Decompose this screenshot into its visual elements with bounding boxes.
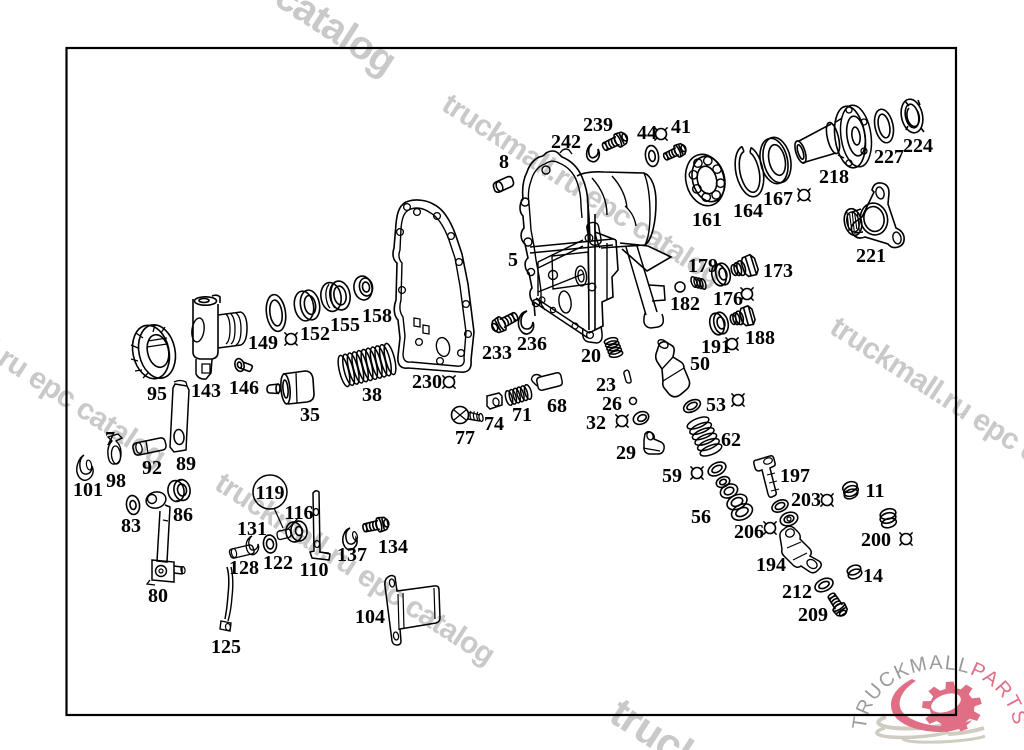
svg-text:32: 32: [586, 412, 606, 434]
svg-text:227: 227: [874, 146, 904, 168]
svg-text:41: 41: [671, 116, 691, 138]
svg-text:50: 50: [690, 353, 710, 375]
svg-text:188: 188: [745, 327, 775, 349]
svg-text:206: 206: [734, 521, 764, 543]
svg-text:14: 14: [863, 565, 883, 587]
svg-text:56: 56: [691, 506, 711, 528]
svg-text:155: 155: [330, 314, 360, 336]
svg-text:89: 89: [176, 453, 196, 475]
svg-text:86: 86: [173, 504, 193, 526]
svg-text:68: 68: [547, 395, 567, 417]
svg-text:194: 194: [756, 554, 786, 576]
svg-text:176: 176: [713, 288, 743, 310]
svg-text:8: 8: [499, 151, 509, 173]
svg-text:137: 137: [337, 544, 367, 566]
svg-text:143: 143: [191, 380, 221, 402]
svg-text:134: 134: [378, 536, 408, 558]
svg-text:101: 101: [73, 479, 103, 501]
svg-text:77: 77: [455, 427, 475, 449]
svg-text:5: 5: [508, 249, 518, 271]
svg-text:131: 131: [237, 518, 267, 540]
svg-text:164: 164: [733, 200, 763, 222]
svg-text:38: 38: [362, 384, 382, 406]
svg-text:236: 236: [517, 333, 547, 355]
svg-text:125: 125: [211, 636, 241, 658]
svg-text:71: 71: [512, 404, 532, 426]
svg-text:104: 104: [355, 606, 385, 628]
svg-text:239: 239: [583, 114, 613, 136]
svg-text:197: 197: [780, 465, 810, 487]
svg-text:167: 167: [763, 188, 793, 210]
svg-text:224: 224: [903, 135, 933, 157]
svg-text:110: 110: [300, 559, 329, 581]
svg-text:158: 158: [362, 305, 392, 327]
svg-text:83: 83: [121, 515, 141, 537]
svg-text:74: 74: [484, 413, 504, 435]
svg-text:146: 146: [229, 377, 259, 399]
svg-text:20: 20: [581, 345, 601, 367]
svg-text:62: 62: [721, 429, 741, 451]
svg-text:200: 200: [861, 529, 891, 551]
svg-text:161: 161: [692, 209, 722, 231]
svg-text:209: 209: [798, 604, 828, 626]
svg-text:152: 152: [300, 323, 330, 345]
svg-text:44: 44: [637, 122, 657, 144]
svg-text:92: 92: [142, 457, 162, 479]
svg-text:221: 221: [856, 245, 886, 267]
svg-text:98: 98: [106, 470, 126, 492]
svg-text:116: 116: [285, 502, 314, 524]
svg-text:11: 11: [866, 480, 885, 502]
svg-text:212: 212: [782, 581, 812, 603]
svg-text:173: 173: [763, 260, 793, 282]
svg-text:242: 242: [551, 131, 581, 153]
svg-text:53: 53: [706, 394, 726, 416]
svg-text:80: 80: [148, 585, 168, 607]
svg-text:128: 128: [229, 557, 259, 579]
svg-text:29: 29: [616, 442, 636, 464]
svg-text:35: 35: [300, 404, 320, 426]
svg-text:233: 233: [482, 342, 512, 364]
svg-text:182: 182: [670, 293, 700, 315]
svg-text:95: 95: [147, 383, 167, 405]
svg-text:149: 149: [248, 332, 278, 354]
svg-text:230: 230: [412, 371, 442, 393]
svg-text:203: 203: [791, 489, 821, 511]
svg-text:119: 119: [256, 482, 285, 504]
svg-text:122: 122: [263, 552, 293, 574]
svg-text:218: 218: [819, 166, 849, 188]
svg-text:59: 59: [662, 465, 682, 487]
svg-text:7: 7: [105, 428, 115, 450]
svg-text:179: 179: [688, 255, 718, 277]
